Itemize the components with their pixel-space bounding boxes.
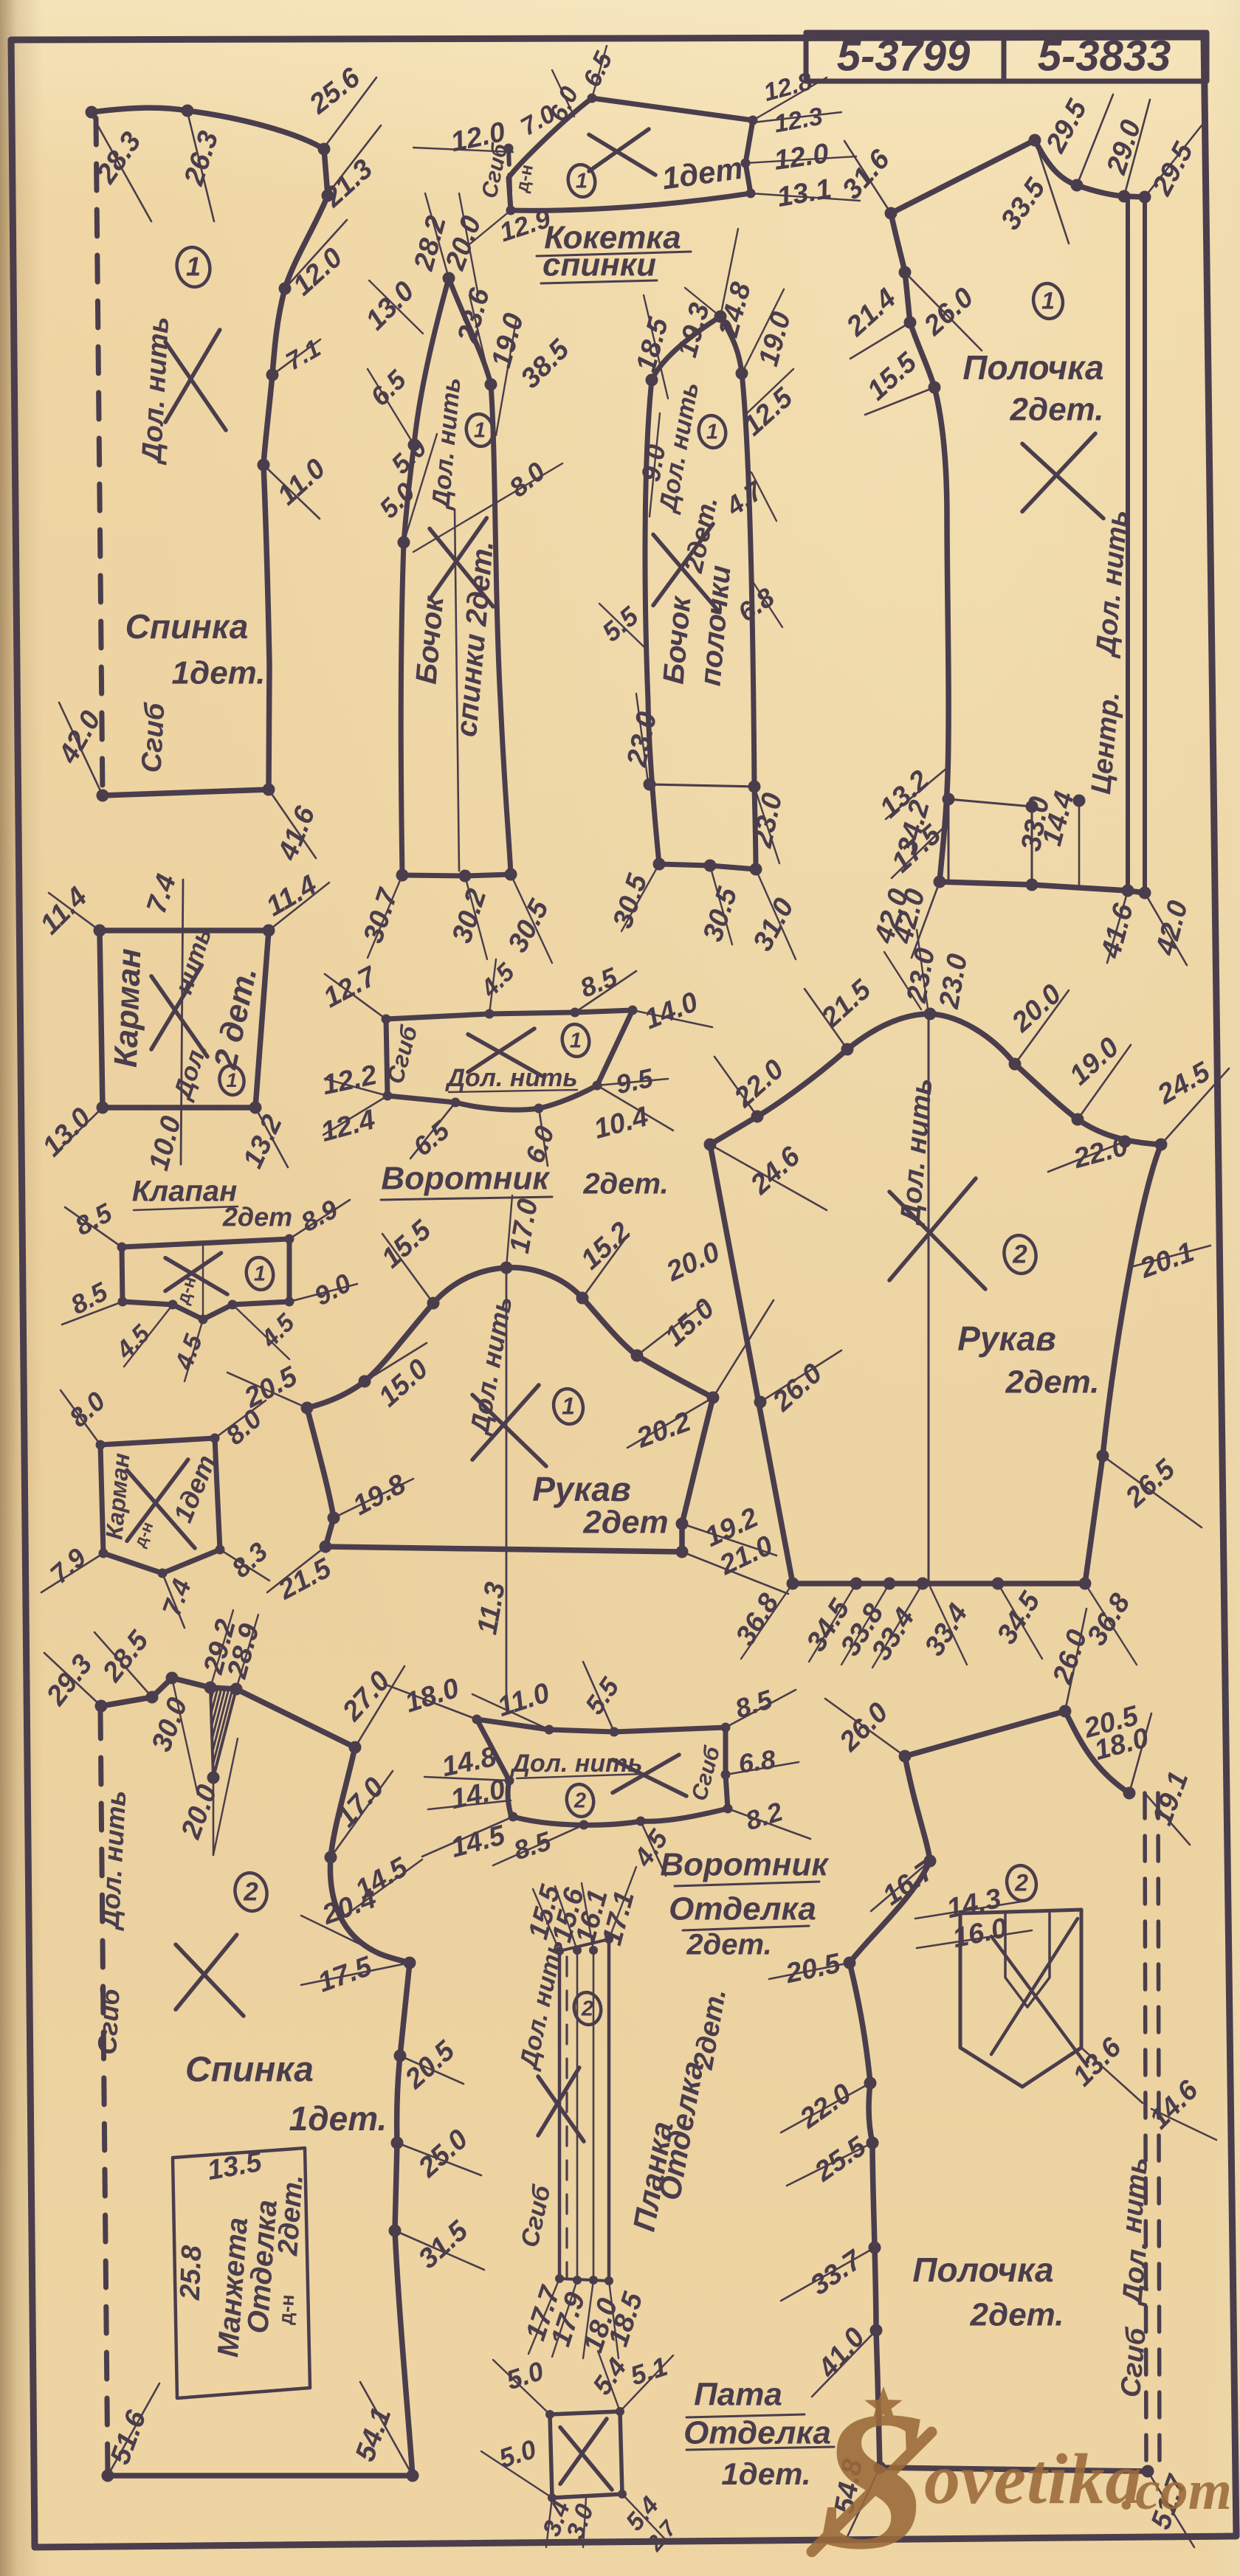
svg-text:1: 1: [474, 419, 486, 443]
svg-text:Сгиб: Сгиб: [137, 701, 171, 773]
svg-text:Клапан: Клапан: [132, 1175, 238, 1208]
svg-text:14.6: 14.6: [1144, 2074, 1205, 2135]
svg-text:полочки: полочки: [695, 564, 737, 687]
svg-text:15.5: 15.5: [861, 347, 923, 407]
svg-text:21.5: 21.5: [815, 974, 877, 1035]
svg-text:19.3: 19.3: [672, 300, 716, 360]
svg-text:14.0: 14.0: [640, 987, 702, 1036]
svg-text:5.1: 5.1: [627, 2351, 671, 2391]
svg-text:12.3: 12.3: [772, 103, 825, 139]
svg-text:14.4: 14.4: [1036, 788, 1081, 849]
svg-text:6.8: 6.8: [737, 1744, 777, 1779]
svg-text:1: 1: [254, 1263, 266, 1286]
svg-text:1дет: 1дет: [660, 151, 745, 196]
svg-text:17.0: 17.0: [331, 1772, 390, 1833]
svg-text:17.5: 17.5: [314, 1950, 376, 1998]
svg-text:Дол. нить: Дол. нить: [137, 316, 175, 466]
svg-text:23.0: 23.0: [934, 952, 974, 1012]
svg-text:Воротник: Воротник: [660, 1847, 830, 1883]
svg-text:2дет.: 2дет.: [272, 2174, 309, 2257]
svg-text:28.5: 28.5: [97, 1625, 156, 1688]
svg-text:1: 1: [570, 1029, 582, 1053]
svg-text:18.5: 18.5: [630, 314, 675, 376]
svg-text:нить: нить: [1117, 2156, 1154, 2234]
svg-text:7.4: 7.4: [141, 871, 182, 917]
svg-text:10.4: 10.4: [590, 1101, 651, 1145]
svg-text:13.0: 13.0: [360, 276, 421, 336]
svg-text:1дет.: 1дет.: [289, 2099, 387, 2138]
svg-text:2дет: 2дет: [582, 1505, 668, 1541]
svg-text:1дет.: 1дет.: [721, 2456, 810, 2491]
svg-text:12.8: 12.8: [761, 67, 816, 107]
svg-text:25.6: 25.6: [303, 62, 367, 121]
svg-text:8.5: 8.5: [70, 1197, 117, 1241]
svg-text:41.6: 41.6: [1095, 900, 1140, 962]
svg-text:2: 2: [1012, 1240, 1027, 1268]
svg-text:15.5: 15.5: [376, 1215, 438, 1274]
svg-text:Бочок: Бочок: [410, 594, 449, 686]
svg-text:33.4: 33.4: [919, 1598, 974, 1661]
svg-text:24.8: 24.8: [713, 279, 757, 341]
svg-text:13.1: 13.1: [775, 173, 834, 213]
svg-text:нить: нить: [170, 925, 217, 998]
svg-text:6.8: 6.8: [732, 581, 780, 627]
svg-text:26.0: 26.0: [766, 1358, 828, 1418]
svg-text:24.5: 24.5: [1152, 1056, 1216, 1111]
svg-text:29.5: 29.5: [1040, 94, 1094, 159]
svg-text:д-н: д-н: [274, 2293, 298, 2325]
svg-text:2дет.: 2дет.: [686, 1929, 771, 1961]
svg-text:Центр.: Центр.: [1086, 691, 1126, 795]
svg-text:5-3799: 5-3799: [837, 32, 971, 80]
svg-text:1дет.: 1дет.: [172, 655, 266, 691]
svg-text:22.0: 22.0: [728, 1054, 790, 1113]
svg-text:Рукав: Рукав: [532, 1470, 631, 1508]
svg-text:д-н: д-н: [173, 1274, 200, 1307]
svg-text:4.5: 4.5: [255, 1308, 301, 1354]
svg-text:Карман: Карман: [108, 947, 148, 1068]
svg-text:26.0: 26.0: [917, 282, 979, 342]
svg-text:7.4: 7.4: [156, 1575, 197, 1620]
svg-text:Сгиб: Сгиб: [92, 1986, 125, 2055]
svg-text:Спинка: Спинка: [185, 2051, 314, 2090]
svg-text:5.5: 5.5: [579, 1671, 625, 1719]
svg-text:12.0: 12.0: [772, 138, 830, 176]
svg-text:27.0: 27.0: [337, 1665, 396, 1727]
svg-text:12.4: 12.4: [317, 1104, 378, 1148]
svg-text:.com: .com: [1121, 2459, 1232, 2521]
svg-text:12.7: 12.7: [319, 960, 383, 1014]
svg-text:Сгиб: Сгиб: [1115, 2325, 1152, 2398]
svg-text:2: 2: [573, 1789, 586, 1813]
svg-text:8.0: 8.0: [503, 456, 551, 503]
svg-text:Полочка: Полочка: [912, 2251, 1053, 2289]
svg-text:18.5: 18.5: [603, 2288, 650, 2350]
svg-text:31.0: 31.0: [747, 894, 800, 956]
svg-text:4.5: 4.5: [111, 1319, 156, 1365]
svg-text:5-3833: 5-3833: [1038, 32, 1171, 80]
svg-text:15.0: 15.0: [659, 1293, 720, 1353]
svg-text:спинки 2дет.: спинки 2дет.: [450, 539, 500, 738]
svg-text:1: 1: [226, 1069, 237, 1091]
svg-text:Дол. нить: Дол. нить: [444, 1064, 577, 1092]
svg-text:33.5: 33.5: [995, 173, 1052, 235]
svg-text:38.5: 38.5: [515, 334, 576, 395]
svg-text:25.8: 25.8: [175, 2244, 208, 2301]
svg-text:20.0: 20.0: [175, 1781, 223, 1843]
svg-text:25.0: 25.0: [412, 2124, 474, 2183]
svg-text:2дет.: 2дет.: [688, 1986, 733, 2072]
svg-text:11.4: 11.4: [35, 882, 94, 941]
svg-text:8.3: 8.3: [226, 1536, 274, 1584]
svg-text:2 дет.: 2 дет.: [207, 964, 264, 1072]
svg-text:Дол.: Дол.: [1117, 2240, 1153, 2307]
svg-text:1: 1: [186, 252, 201, 282]
svg-text:2: 2: [1014, 1869, 1028, 1896]
svg-text:29.5: 29.5: [1146, 137, 1200, 201]
svg-text:20.0: 20.0: [1005, 978, 1067, 1038]
svg-text:2: 2: [581, 1997, 593, 2021]
svg-text:1: 1: [562, 1392, 575, 1419]
svg-text:ovetika: ovetika: [924, 2439, 1142, 2519]
svg-text:2дет.: 2дет.: [1005, 1364, 1100, 1401]
svg-text:1: 1: [1041, 287, 1055, 314]
svg-text:30.5: 30.5: [502, 894, 555, 958]
svg-text:29.0: 29.0: [1100, 117, 1147, 179]
svg-text:Спинка: Спинка: [125, 607, 249, 646]
svg-text:26.5: 26.5: [1119, 1454, 1181, 1514]
svg-text:20.4: 20.4: [317, 1883, 380, 1931]
svg-text:Сгиб: Сгиб: [516, 2182, 557, 2250]
svg-text:2дет: 2дет: [222, 1202, 292, 1232]
svg-text:5.0: 5.0: [495, 2434, 540, 2473]
svg-text:Дол. нить: Дол. нить: [427, 376, 466, 511]
svg-text:5.4: 5.4: [586, 2352, 632, 2400]
svg-text:22.0: 22.0: [794, 2078, 858, 2135]
svg-text:11.0: 11.0: [494, 1677, 554, 1723]
svg-text:36.8: 36.8: [730, 1588, 785, 1651]
svg-text:2дет.: 2дет.: [582, 1168, 668, 1201]
svg-text:19.0: 19.0: [1064, 1032, 1125, 1091]
svg-text:31.5: 31.5: [413, 2215, 475, 2275]
svg-text:4.5: 4.5: [475, 958, 521, 1004]
svg-text:20.5: 20.5: [782, 1948, 844, 1990]
svg-text:2: 2: [243, 1877, 258, 1906]
svg-text:42.0: 42.0: [52, 705, 107, 769]
svg-text:30.5: 30.5: [697, 883, 744, 945]
svg-text:33.7: 33.7: [805, 2244, 869, 2302]
svg-text:20.0: 20.0: [661, 1237, 725, 1288]
svg-text:6.5: 6.5: [578, 47, 619, 91]
svg-text:4.7: 4.7: [720, 474, 769, 522]
svg-text:спинки: спинки: [542, 247, 656, 283]
svg-text:Полочка: Полочка: [962, 348, 1103, 387]
svg-text:13.5: 13.5: [205, 2147, 265, 2186]
svg-text:26.0: 26.0: [1047, 1626, 1093, 1688]
svg-text:Отделка: Отделка: [669, 1891, 816, 1927]
svg-text:18.0: 18.0: [402, 1673, 463, 1719]
svg-text:9.0: 9.0: [309, 1268, 356, 1312]
svg-text:1: 1: [576, 170, 588, 193]
svg-text:24.6: 24.6: [744, 1141, 806, 1201]
svg-text:2дет.: 2дет.: [970, 2297, 1064, 2333]
svg-text:Сгиб: Сгиб: [687, 1743, 726, 1803]
svg-text:26.3: 26.3: [178, 128, 224, 190]
svg-text:Карман: Карман: [100, 1452, 134, 1541]
svg-text:Дол.: Дол.: [168, 1040, 213, 1104]
svg-text:8.5: 8.5: [510, 1826, 555, 1866]
svg-text:Дол. нить: Дол. нить: [94, 1789, 131, 1931]
svg-text:30.7: 30.7: [358, 884, 404, 947]
svg-text:13.0: 13.0: [37, 1102, 97, 1163]
svg-text:Пата: Пата: [694, 2377, 782, 2413]
svg-text:Рукав: Рукав: [957, 1319, 1056, 1358]
svg-text:22.0: 22.0: [1069, 1130, 1131, 1175]
svg-text:Воротник: Воротник: [381, 1161, 551, 1197]
svg-text:Бочок: Бочок: [657, 594, 697, 686]
svg-text:30.5: 30.5: [607, 870, 654, 932]
svg-text:19.0: 19.0: [486, 310, 530, 370]
svg-text:Отделка: Отделка: [683, 2415, 831, 2451]
svg-text:42.0: 42.0: [1150, 897, 1194, 959]
svg-text:19.1: 19.1: [1147, 1767, 1195, 1829]
svg-text:5.0: 5.0: [373, 477, 421, 524]
svg-text:20.1: 20.1: [1135, 1237, 1198, 1285]
svg-text:20.5: 20.5: [399, 2035, 461, 2096]
svg-text:2дет.: 2дет.: [1010, 392, 1104, 428]
svg-text:1: 1: [706, 421, 718, 444]
svg-text:S: S: [818, 2370, 929, 2576]
svg-text:д-н: д-н: [130, 1519, 156, 1550]
